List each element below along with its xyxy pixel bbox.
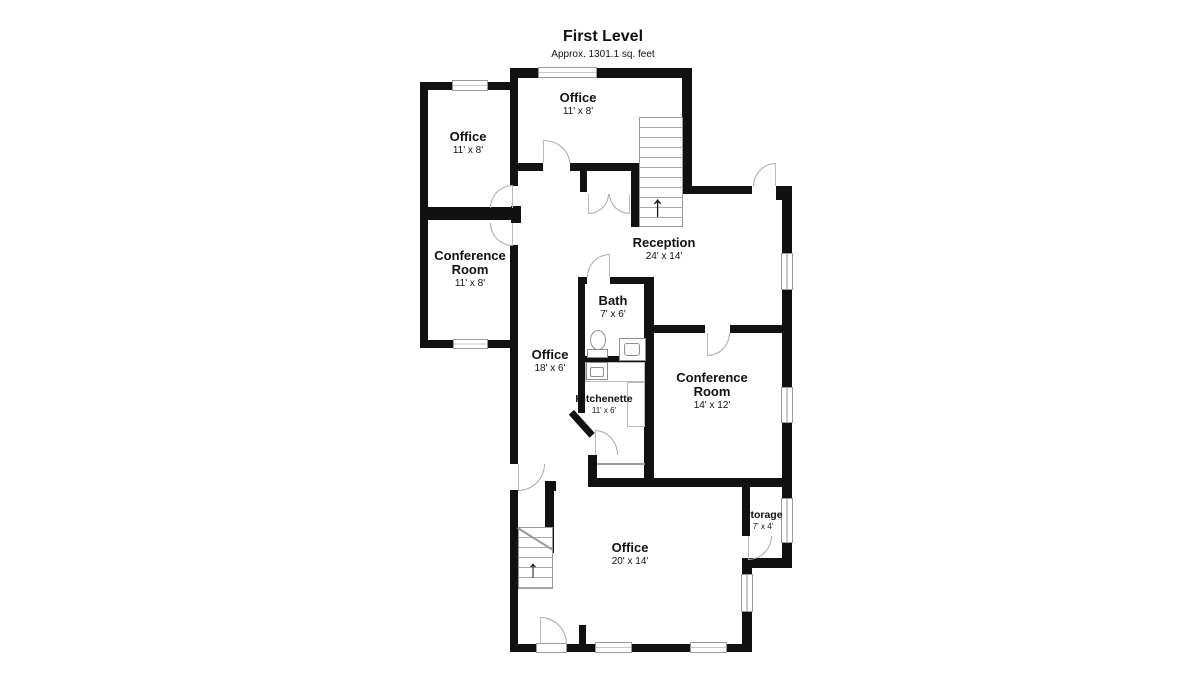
door-threshold xyxy=(536,643,567,653)
room-name: Reception xyxy=(633,236,696,250)
door-arc-entry-left-leaf xyxy=(588,194,609,214)
window xyxy=(781,253,793,290)
door-arc-storage xyxy=(748,536,772,560)
wall-segment xyxy=(580,171,587,192)
room-label-office-middle: Office 18' x 6' xyxy=(532,348,569,376)
wall-segment xyxy=(682,68,692,194)
door-arc-conference-main xyxy=(707,333,730,356)
room-dims: 14' x 12' xyxy=(669,400,755,413)
room-label-kitchenette: Kitchenette 11' x 6' xyxy=(575,394,632,416)
wall-segment xyxy=(510,163,543,171)
wall-segment xyxy=(650,325,705,333)
window xyxy=(781,387,793,423)
wall-segment xyxy=(510,348,518,464)
door-arc-left-office xyxy=(490,185,513,208)
pass-through-opening xyxy=(597,463,645,465)
room-name: Office xyxy=(612,541,649,555)
door-arc-bath xyxy=(587,254,610,277)
door-arc-bottom-entry xyxy=(540,617,567,644)
wall-segment xyxy=(545,481,556,491)
wall-segment xyxy=(687,186,752,194)
room-dims: 11' x 8' xyxy=(450,145,487,158)
door-arc-reception-exterior xyxy=(753,163,776,186)
room-label-storage: Storage 7' x 4' xyxy=(743,510,782,532)
wall-segment xyxy=(644,277,654,482)
door-arc-top-office xyxy=(543,140,570,163)
up-arrow-icon: ↑ xyxy=(650,192,665,222)
wall-segment xyxy=(570,163,638,171)
room-label-reception: Reception 24' x 14' xyxy=(633,236,696,264)
room-label-conference-left: Conference Room 11' x 8' xyxy=(427,249,513,291)
floor-plan: First Level Approx. 1301.1 sq. feet xyxy=(0,0,1200,675)
plan-title: First Level Approx. 1301.1 sq. feet xyxy=(551,28,654,60)
door-arc-office-bottom xyxy=(518,464,545,491)
room-name: Conference Room xyxy=(669,371,755,399)
window xyxy=(538,67,597,78)
bathroom-sink xyxy=(624,343,640,356)
room-label-office-top-left: Office 11' x 8' xyxy=(450,130,487,158)
room-label-conference-main: Conference Room 14' x 12' xyxy=(669,371,755,413)
room-label-office-bottom: Office 20' x 14' xyxy=(612,541,649,569)
wall-segment xyxy=(730,325,792,333)
wall-segment xyxy=(631,163,639,227)
room-name: Bath xyxy=(599,294,628,308)
window xyxy=(690,642,727,653)
room-dims: 7' x 4' xyxy=(743,522,782,532)
wall-segment xyxy=(511,206,521,223)
room-dims: 11' x 8' xyxy=(560,106,597,119)
room-dims: 20' x 14' xyxy=(612,556,649,569)
up-arrow-icon: ↑ xyxy=(527,558,539,582)
door-arc-kitchenette xyxy=(595,430,618,455)
window xyxy=(741,574,753,612)
room-name: Office xyxy=(532,348,569,362)
room-label-office-top: Office 11' x 8' xyxy=(560,91,597,119)
window xyxy=(453,339,488,349)
room-dims: 11' x 8' xyxy=(427,278,513,291)
wall-segment xyxy=(420,207,514,220)
room-label-bath: Bath 7' x 6' xyxy=(599,294,628,322)
room-dims: 7' x 6' xyxy=(599,309,628,322)
room-name: Office xyxy=(560,91,597,105)
room-dims: 24' x 14' xyxy=(633,251,696,264)
wall-segment xyxy=(579,625,586,646)
wall-segment xyxy=(588,478,792,487)
room-name: Office xyxy=(450,130,487,144)
window xyxy=(781,498,793,543)
kitchen-sink xyxy=(590,367,604,377)
room-dims: 11' x 6' xyxy=(575,406,632,416)
door-arc-left-conference xyxy=(490,223,513,246)
room-name: Conference Room xyxy=(427,249,513,277)
window xyxy=(452,80,488,91)
toilet xyxy=(587,349,608,358)
room-name: Storage xyxy=(743,510,782,521)
room-dims: 18' x 6' xyxy=(532,363,569,376)
floor-name: First Level xyxy=(551,28,654,46)
room-name: Kitchenette xyxy=(575,394,632,405)
window xyxy=(595,642,632,653)
toilet xyxy=(590,330,606,350)
wall-segment xyxy=(510,490,518,652)
floor-area: Approx. 1301.1 sq. feet xyxy=(551,49,654,60)
wall-segment xyxy=(578,277,585,363)
door-arc-entry-right-leaf xyxy=(609,194,630,214)
